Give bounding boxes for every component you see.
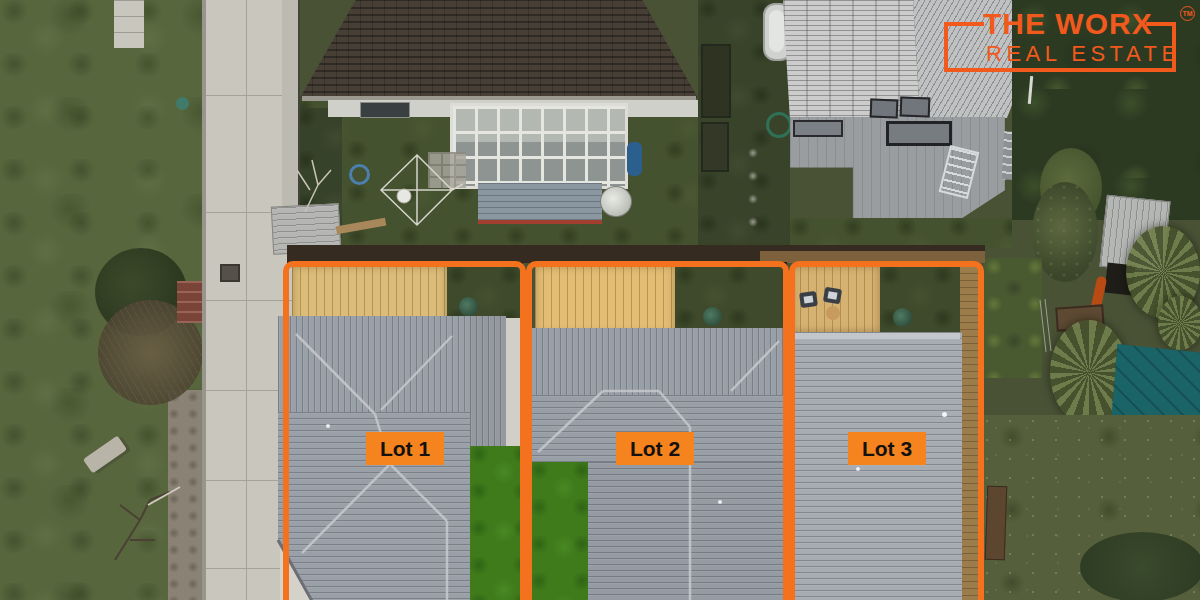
- brand-logo: THE WORX REAL ESTATE TM: [940, 2, 1196, 82]
- lot2-label-text: Lot 2: [630, 437, 680, 461]
- lot3-label-text: Lot 3: [862, 437, 912, 461]
- white-bucket: [397, 189, 411, 203]
- fallen-branches: [115, 492, 170, 560]
- lot3-boundary: [789, 261, 984, 600]
- wire-fence: [1040, 299, 1051, 352]
- aerial-photo: Lot 1 Lot 2 Lot 3 THE WORX REAL ESTATE T…: [0, 0, 1200, 600]
- brand-name: THE WORX: [983, 7, 1153, 41]
- lot2-boundary: [526, 261, 789, 600]
- rotary-clothesline: [381, 155, 463, 225]
- lot3-label: Lot 3: [848, 432, 926, 465]
- brand-tagline: REAL ESTATE: [986, 41, 1181, 67]
- logo-frame-bottom: [944, 68, 1176, 72]
- lot1-label: Lot 1: [366, 432, 444, 465]
- logo-frame-top-left: [944, 22, 984, 26]
- lot1-boundary: [283, 261, 526, 600]
- bare-tree-branches: [297, 160, 331, 212]
- logo-frame-left: [944, 22, 948, 72]
- lot1-label-text: Lot 1: [380, 437, 430, 461]
- lot2-label: Lot 2: [616, 432, 694, 465]
- trademark-symbol: TM: [1180, 6, 1195, 21]
- light-stick: [148, 487, 180, 505]
